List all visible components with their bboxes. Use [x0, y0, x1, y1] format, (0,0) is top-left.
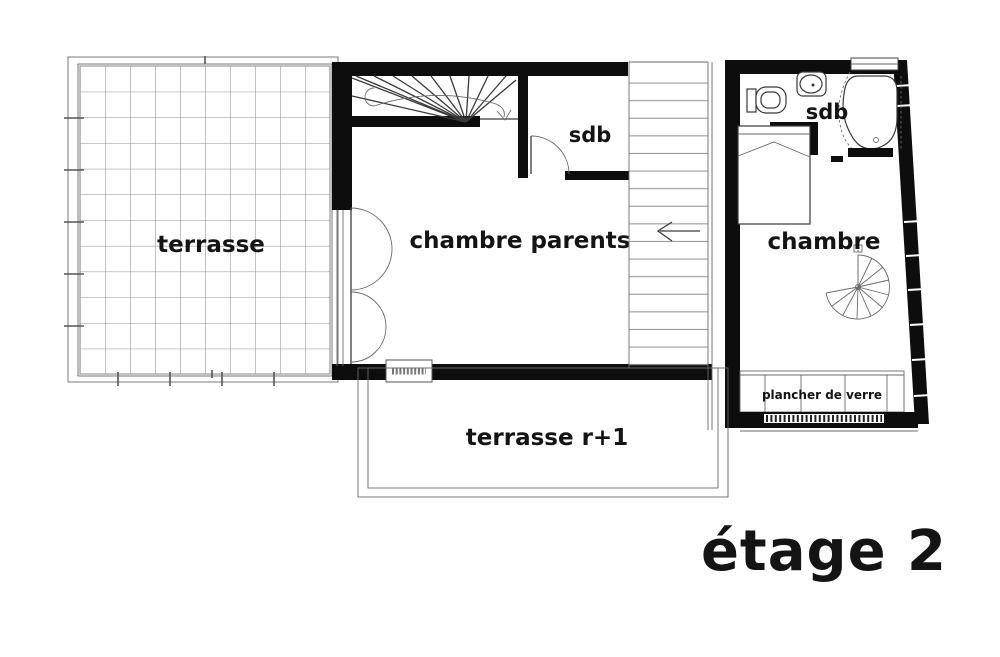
floor-title: étage 2 — [701, 519, 947, 584]
floor-plan-page: terrasse — [0, 0, 1000, 657]
sdb-center-door — [531, 136, 569, 174]
wall-top-center — [332, 62, 628, 76]
terrace-label: terrasse — [157, 232, 265, 258]
wall-sdb-bottom — [565, 171, 629, 180]
lower-terrace-label: terrasse r+1 — [466, 425, 628, 451]
sink — [797, 72, 826, 96]
wall-bottom-right-block — [740, 412, 918, 431]
bed — [738, 126, 810, 224]
wall-left-center — [332, 62, 352, 210]
wall-left-right-block — [725, 60, 740, 428]
terrace: terrasse — [64, 56, 338, 386]
floor-plan-canvas: terrasse — [0, 0, 1000, 657]
sdb-center-label: sdb — [569, 123, 612, 147]
right-block: plancher de verre sdb chambre — [725, 58, 931, 431]
vent — [386, 360, 432, 382]
folding-doors — [337, 208, 392, 366]
glass-floor-label: plancher de verre — [762, 388, 882, 402]
bedroom-label: chambre — [768, 229, 881, 255]
wall-sdb-left — [518, 62, 528, 178]
toilet — [747, 87, 786, 113]
winder-staircase — [352, 76, 516, 122]
wall-slanted-right — [893, 60, 929, 424]
bathroom-window — [851, 58, 898, 70]
glass-floor: plancher de verre — [740, 371, 904, 412]
lower-terrace: terrasse r+1 — [358, 368, 728, 497]
parents-bedroom-label: chambre parents — [410, 228, 631, 254]
terrace-grid — [80, 66, 330, 374]
spiral-staircase — [826, 245, 889, 319]
sdb-right-label: sdb — [806, 100, 849, 124]
